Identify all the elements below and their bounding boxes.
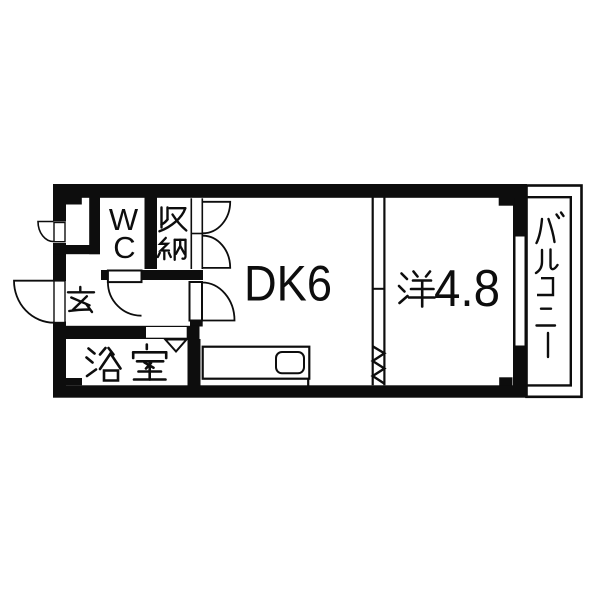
svg-text:C: C: [113, 230, 135, 265]
svg-text:4.8: 4.8: [434, 260, 500, 318]
svg-text:DK6: DK6: [244, 255, 332, 312]
